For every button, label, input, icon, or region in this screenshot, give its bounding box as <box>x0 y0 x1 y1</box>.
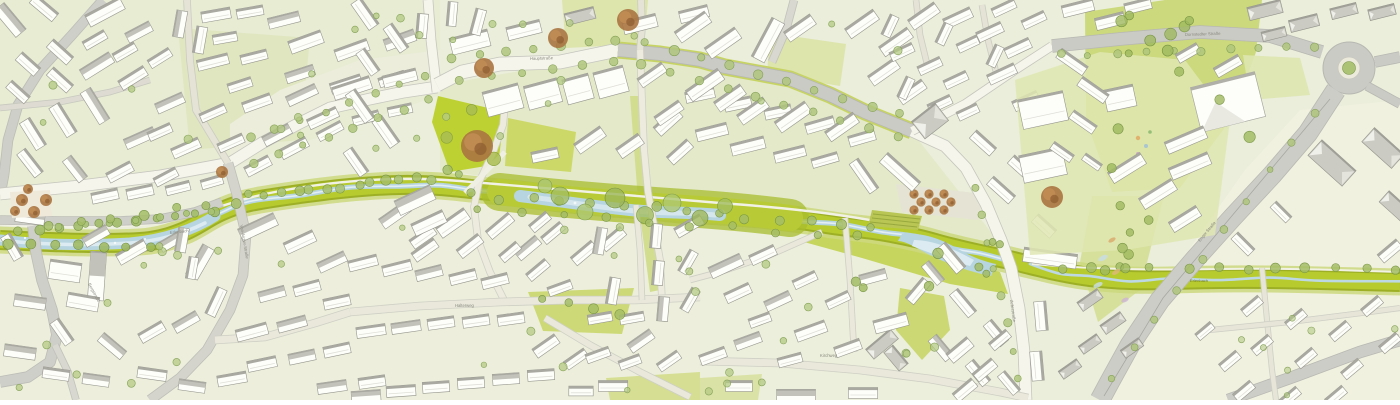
svg-text:Erlenbach: Erlenbach <box>1190 278 1208 283</box>
svg-text:Kirchweg: Kirchweg <box>820 353 838 358</box>
svg-text:Halterweg: Halterweg <box>455 303 475 308</box>
svg-text:Hauptstraße: Hauptstraße <box>530 55 554 61</box>
